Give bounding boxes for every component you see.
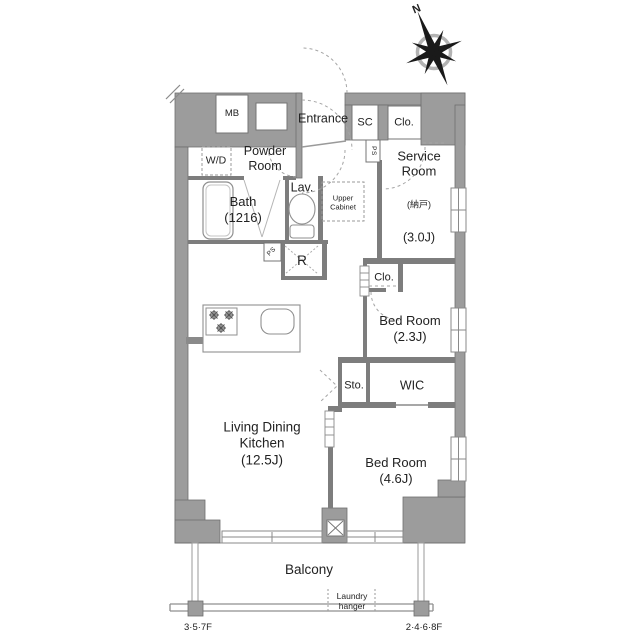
wall-bottom-right-block (403, 497, 465, 543)
floor-plan: N MB Entrance SC Clo. W/D Powder Room Ba… (0, 0, 640, 639)
balcony-support-left (192, 543, 198, 603)
wall-right-thick (438, 480, 465, 497)
room-label-sc: SC (357, 116, 372, 129)
floor-plan-drawing (0, 0, 640, 639)
room-label-service: Service Room (納戸) (3.0J) (397, 129, 440, 266)
room-label-mb: MB (225, 108, 239, 120)
wall-entrance-left (296, 93, 302, 178)
sliding-door-bedroom4 (325, 411, 334, 447)
balcony-structure (170, 543, 433, 616)
room-label-bedroom4: Bed Room (4.6J) (365, 455, 426, 487)
wall-sc-clo-divider (378, 105, 388, 140)
wall-left (175, 147, 188, 543)
window-bedroom4-south (347, 531, 403, 543)
window-service-room (451, 188, 466, 232)
balcony-rail (170, 604, 433, 611)
laundry-hanger-label: Laundry hanger (337, 592, 368, 612)
toilet-icon (289, 194, 315, 238)
window-ldk-south (222, 531, 322, 543)
balcony-support-right (418, 543, 424, 603)
room-label-bath: Bath (1216) (224, 194, 262, 226)
room-label-refrigerator: R (297, 253, 307, 269)
room-label-clo-bed2: Clo. (374, 271, 394, 284)
sliding-doors (325, 266, 428, 447)
compass-icon (386, 0, 479, 98)
entry-cabinet-box (256, 103, 287, 130)
service-room-sub: (納戸) (397, 199, 440, 211)
balcony-post-right (414, 601, 429, 616)
room-label-lav: Lav. (291, 180, 314, 195)
room-label-wd: W/D (206, 155, 226, 168)
balcony-post-left (188, 601, 203, 616)
floor-note-left: 3·5·7F (184, 622, 212, 634)
sink-icon (261, 309, 294, 334)
front-door-swing (302, 48, 347, 93)
room-label-balcony: Balcony (285, 562, 333, 578)
room-label-storage: Sto. (344, 379, 364, 392)
room-label-ldk: Living Dining Kitchen (12.5J) (223, 419, 300, 468)
service-room-size: (3.0J) (397, 231, 440, 246)
sliding-door-bedroom2 (360, 266, 369, 296)
room-label-wic: WIC (400, 378, 424, 393)
storage-bifold-door (320, 370, 337, 402)
floor-note-right: 2·4·6·8F (406, 622, 442, 634)
window-bedroom4 (451, 437, 466, 481)
room-label-ps-top: PS (369, 146, 377, 156)
room-label-entrance: Entrance (298, 111, 348, 126)
room-label-powder: Powder Room (244, 144, 286, 175)
service-room-name: Service Room (397, 148, 440, 180)
kitchen-counter (203, 305, 300, 352)
room-label-bedroom2: Bed Room (2.3J) (379, 313, 440, 345)
wall-bottom-left-lower (175, 520, 220, 543)
entrance-step-line (302, 141, 346, 147)
room-label-upper-cabinet: Upper Cabinet (330, 194, 356, 211)
window-bedroom2 (451, 308, 466, 352)
